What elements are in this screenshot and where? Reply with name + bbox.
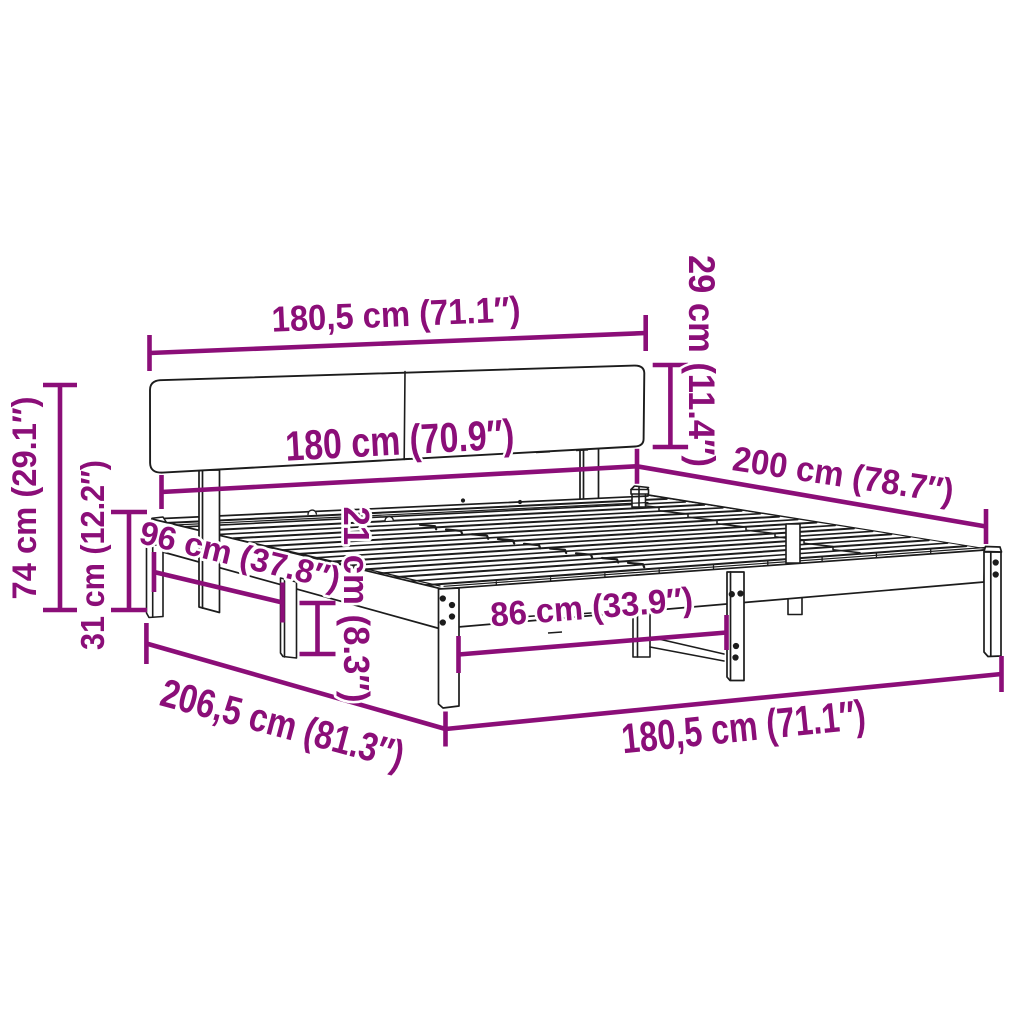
svg-text:31 cm (12.2″): 31 cm (12.2″) — [74, 460, 111, 650]
svg-text:29 cm (11.4″): 29 cm (11.4″) — [681, 255, 722, 467]
svg-text:74 cm (29.1″): 74 cm (29.1″) — [6, 397, 44, 600]
svg-text:21 cm (8.3″): 21 cm (8.3″) — [336, 507, 377, 703]
